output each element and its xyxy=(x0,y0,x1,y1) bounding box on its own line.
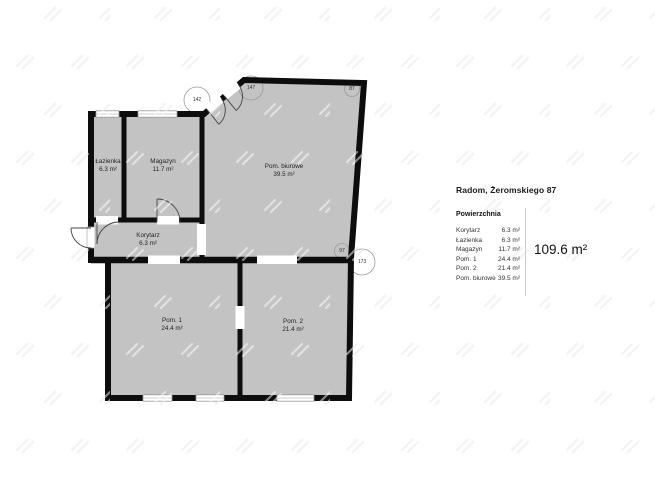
area-table: Korytarz 6.3 m² Łazienka 6.3 m² Magazyn … xyxy=(456,227,520,284)
total-area: 109.6 m² xyxy=(534,242,587,257)
row-name: Łazienka xyxy=(456,237,482,247)
row-area: 21.4 m² xyxy=(498,265,520,275)
room-area: 6.3 m² xyxy=(95,166,120,174)
room-area: 21.4 m² xyxy=(282,326,303,334)
room-area: 11.7 m² xyxy=(150,166,176,174)
area-row: Magazyn 11.7 m² xyxy=(456,246,520,256)
vertical-divider xyxy=(525,208,526,296)
row-name: Magazyn xyxy=(456,246,482,256)
room-label-magazyn: Magazyn 11.7 m² xyxy=(150,158,176,174)
room-name: Korytarz xyxy=(136,232,159,240)
legend-panel: Radom, Żeromskiego 87 Powierzchnia Koryt… xyxy=(456,185,596,303)
room-area: 24.4 m² xyxy=(161,325,182,333)
row-name: Pom. 2 xyxy=(456,265,477,275)
room-area: 39.5 m² xyxy=(265,171,304,179)
row-area: 6.3 m² xyxy=(502,237,520,247)
room-name: Łazienka xyxy=(95,158,120,166)
listing-title: Radom, Żeromskiego 87 xyxy=(456,185,596,195)
row-area: 6.3 m² xyxy=(502,227,520,237)
room-label-lazienka: Łazienka 6.3 m² xyxy=(95,158,120,174)
row-area: 24.4 m² xyxy=(498,256,520,266)
area-row: Pom. 1 24.4 m² xyxy=(456,256,520,266)
room-area: 6.3 m² xyxy=(136,240,159,248)
area-row: Pom. 2 21.4 m² xyxy=(456,265,520,275)
room-label-pom-biurowe: Pom. biurowe 39.5 m² xyxy=(265,163,304,179)
room-label-korytarz: Korytarz 6.3 m² xyxy=(136,232,159,248)
room-name: Pom. biurowe xyxy=(265,163,304,171)
row-name: Korytarz xyxy=(456,227,480,237)
row-name: Pom. 1 xyxy=(456,256,477,266)
room-name: Pom. 2 xyxy=(282,318,303,326)
area-row: Korytarz 6.3 m² xyxy=(456,227,520,237)
area-summary: Powierzchnia Korytarz 6.3 m² Łazienka 6.… xyxy=(456,211,596,303)
room-name: Pom. 1 xyxy=(161,317,182,325)
row-name: Pom. biurowe xyxy=(456,275,496,285)
room-label-pom-2: Pom. 2 21.4 m² xyxy=(282,318,303,334)
area-row: Pom. biurowe 39.5 m² xyxy=(456,275,520,285)
row-area: 11.7 m² xyxy=(498,246,520,256)
room-name: Magazyn xyxy=(150,158,176,166)
room-label-pom-1: Pom. 1 24.4 m² xyxy=(161,317,182,333)
section-label: Powierzchnia xyxy=(456,211,596,218)
row-area: 39.5 m² xyxy=(498,275,520,285)
area-row: Łazienka 6.3 m² xyxy=(456,237,520,247)
floorplan-page: 142 147 87 97 173 Łazienka 6.3 m² Magazy… xyxy=(0,0,655,480)
